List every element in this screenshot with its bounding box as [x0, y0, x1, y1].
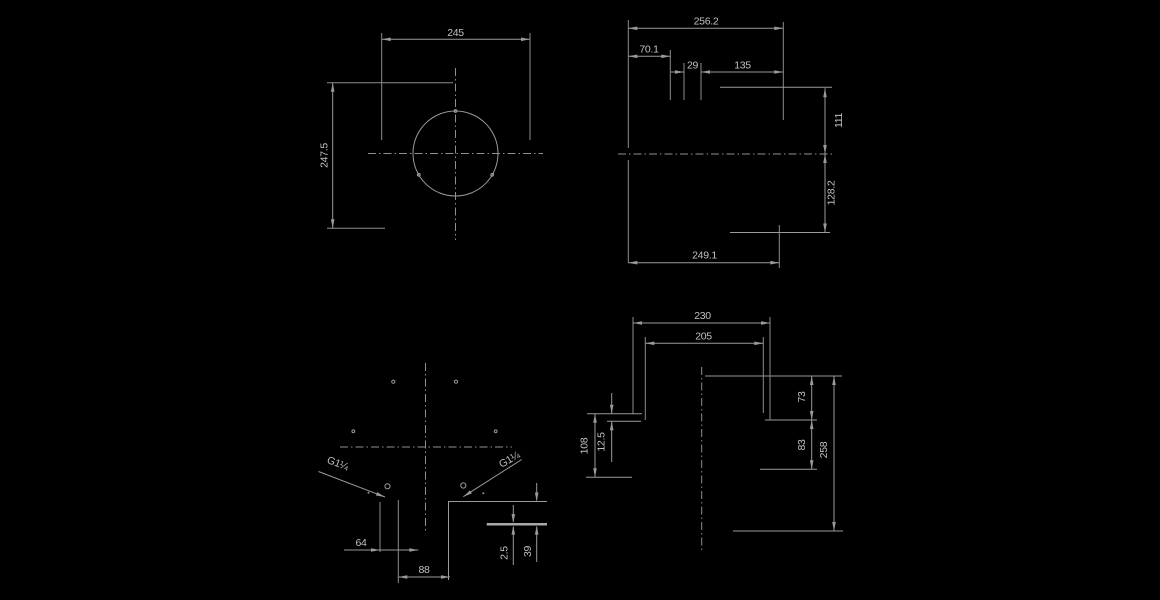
- dim-outer-width-230: 230: [633, 310, 770, 325]
- extension-lines: [628, 20, 783, 268]
- dim-label: 64: [355, 537, 367, 549]
- dim-label: 249.1: [692, 250, 717, 262]
- extension-lines: [380, 500, 398, 583]
- dim-label: 111: [833, 113, 845, 129]
- dim-label: 73: [796, 391, 808, 403]
- dim-lower-height-128-2: 128.2: [823, 154, 837, 233]
- dim-label: 88: [418, 564, 430, 576]
- drawing-canvas: 245 247.5 256.2 70.1 29 1: [0, 0, 1160, 600]
- dim-port-offset-64: 64: [344, 537, 418, 552]
- bottom-view: G1¼ G1¼ 64 88 2.5 39: [319, 363, 548, 583]
- top-view: 245 247.5: [319, 27, 544, 240]
- centerlines: [340, 363, 512, 533]
- leader-arrowhead: [376, 492, 385, 497]
- dim-width-245: 245: [382, 27, 530, 41]
- dim-label: 247.5: [319, 143, 331, 168]
- dim-upper-height-111: 111: [823, 88, 845, 154]
- dim-overall-height-258: 258: [818, 376, 836, 531]
- port-hole: [461, 483, 466, 488]
- hole-mark: [392, 380, 395, 383]
- dim-label: 108: [579, 437, 591, 454]
- dim-left-offset-70-1: 70.1: [628, 44, 670, 59]
- thread-callout-right: G1¼: [463, 449, 522, 497]
- dim-label: 12.5: [596, 432, 608, 452]
- leader-line: [463, 460, 521, 497]
- dim-base-width-249-1: 249.1: [628, 250, 779, 265]
- dim-upper-step-73: 73: [796, 376, 814, 420]
- dim-overall-width-256-2: 256.2: [628, 16, 783, 31]
- hole-mark: [494, 430, 497, 433]
- point-mark: [482, 492, 484, 494]
- hole-mark: [454, 380, 457, 383]
- dim-inner-width-205: 205: [645, 331, 763, 346]
- extension-lines: [327, 33, 530, 228]
- side-view: 230 205 12.5 108 73 83: [579, 310, 844, 550]
- dim-label: 70.1: [639, 44, 659, 56]
- dim-foot-height-39: 39: [522, 483, 539, 562]
- edge-lines: [449, 502, 548, 581]
- arrowheads: [774, 70, 783, 74]
- dim-right-offset-135: 135: [701, 60, 783, 74]
- dim-label: 245: [447, 27, 464, 39]
- dim-label: 258: [818, 441, 830, 458]
- leader-arrowhead: [463, 490, 472, 496]
- dim-base-width-88: 88: [398, 564, 450, 579]
- dim-label: 135: [734, 60, 751, 72]
- dim-height-247-5: 247.5: [319, 83, 335, 229]
- centerlines: [368, 68, 543, 240]
- dim-label: 256.2: [694, 16, 719, 28]
- leader-line: [319, 472, 386, 498]
- dim-label: 83: [796, 439, 808, 451]
- dim-label: 2.5: [499, 546, 511, 560]
- drawing-sheet: 245 247.5 256.2 70.1 29 1: [0, 0, 1160, 600]
- dim-left-height-108: 108: [579, 414, 597, 478]
- point-mark: [368, 492, 370, 494]
- edge-lines: [720, 87, 832, 232]
- dim-lip-height-12-5: 12.5: [596, 393, 614, 462]
- thread-callout-left: G1¼: [319, 454, 386, 497]
- port-hole: [385, 484, 390, 489]
- thread-label: G1¼: [325, 454, 350, 473]
- small-holes: [352, 380, 497, 494]
- dim-label: 128.2: [826, 180, 838, 205]
- dim-label: 29: [687, 60, 699, 72]
- dim-label: 39: [522, 546, 534, 558]
- dim-label: 230: [694, 310, 711, 322]
- arrowheads: [610, 405, 614, 431]
- arrowheads: [535, 493, 539, 535]
- dim-label: 205: [695, 331, 712, 343]
- hole-mark: [352, 430, 355, 433]
- dim-plate-thickness-2-5: 2.5: [499, 505, 516, 565]
- dim-mid-step-83: 83: [796, 420, 814, 469]
- front-view: 256.2 70.1 29 135 111 128.2: [618, 16, 845, 269]
